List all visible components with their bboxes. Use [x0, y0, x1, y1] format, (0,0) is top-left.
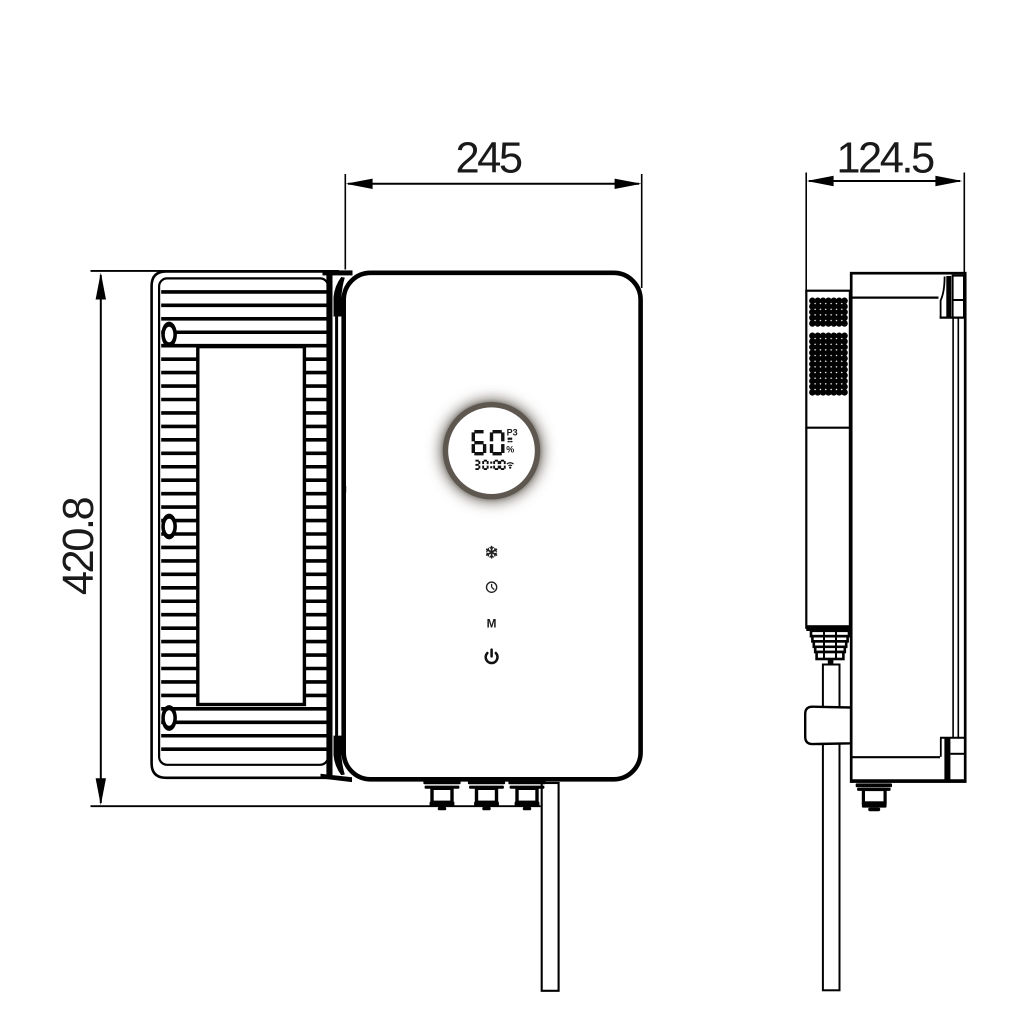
svg-text:245: 245: [455, 135, 521, 183]
svg-text:P3: P3: [507, 428, 518, 438]
svg-text:M: M: [487, 616, 497, 630]
svg-text:%: %: [506, 445, 514, 455]
svg-text:124.5: 124.5: [836, 135, 934, 183]
svg-text:420.8: 420.8: [55, 498, 103, 596]
